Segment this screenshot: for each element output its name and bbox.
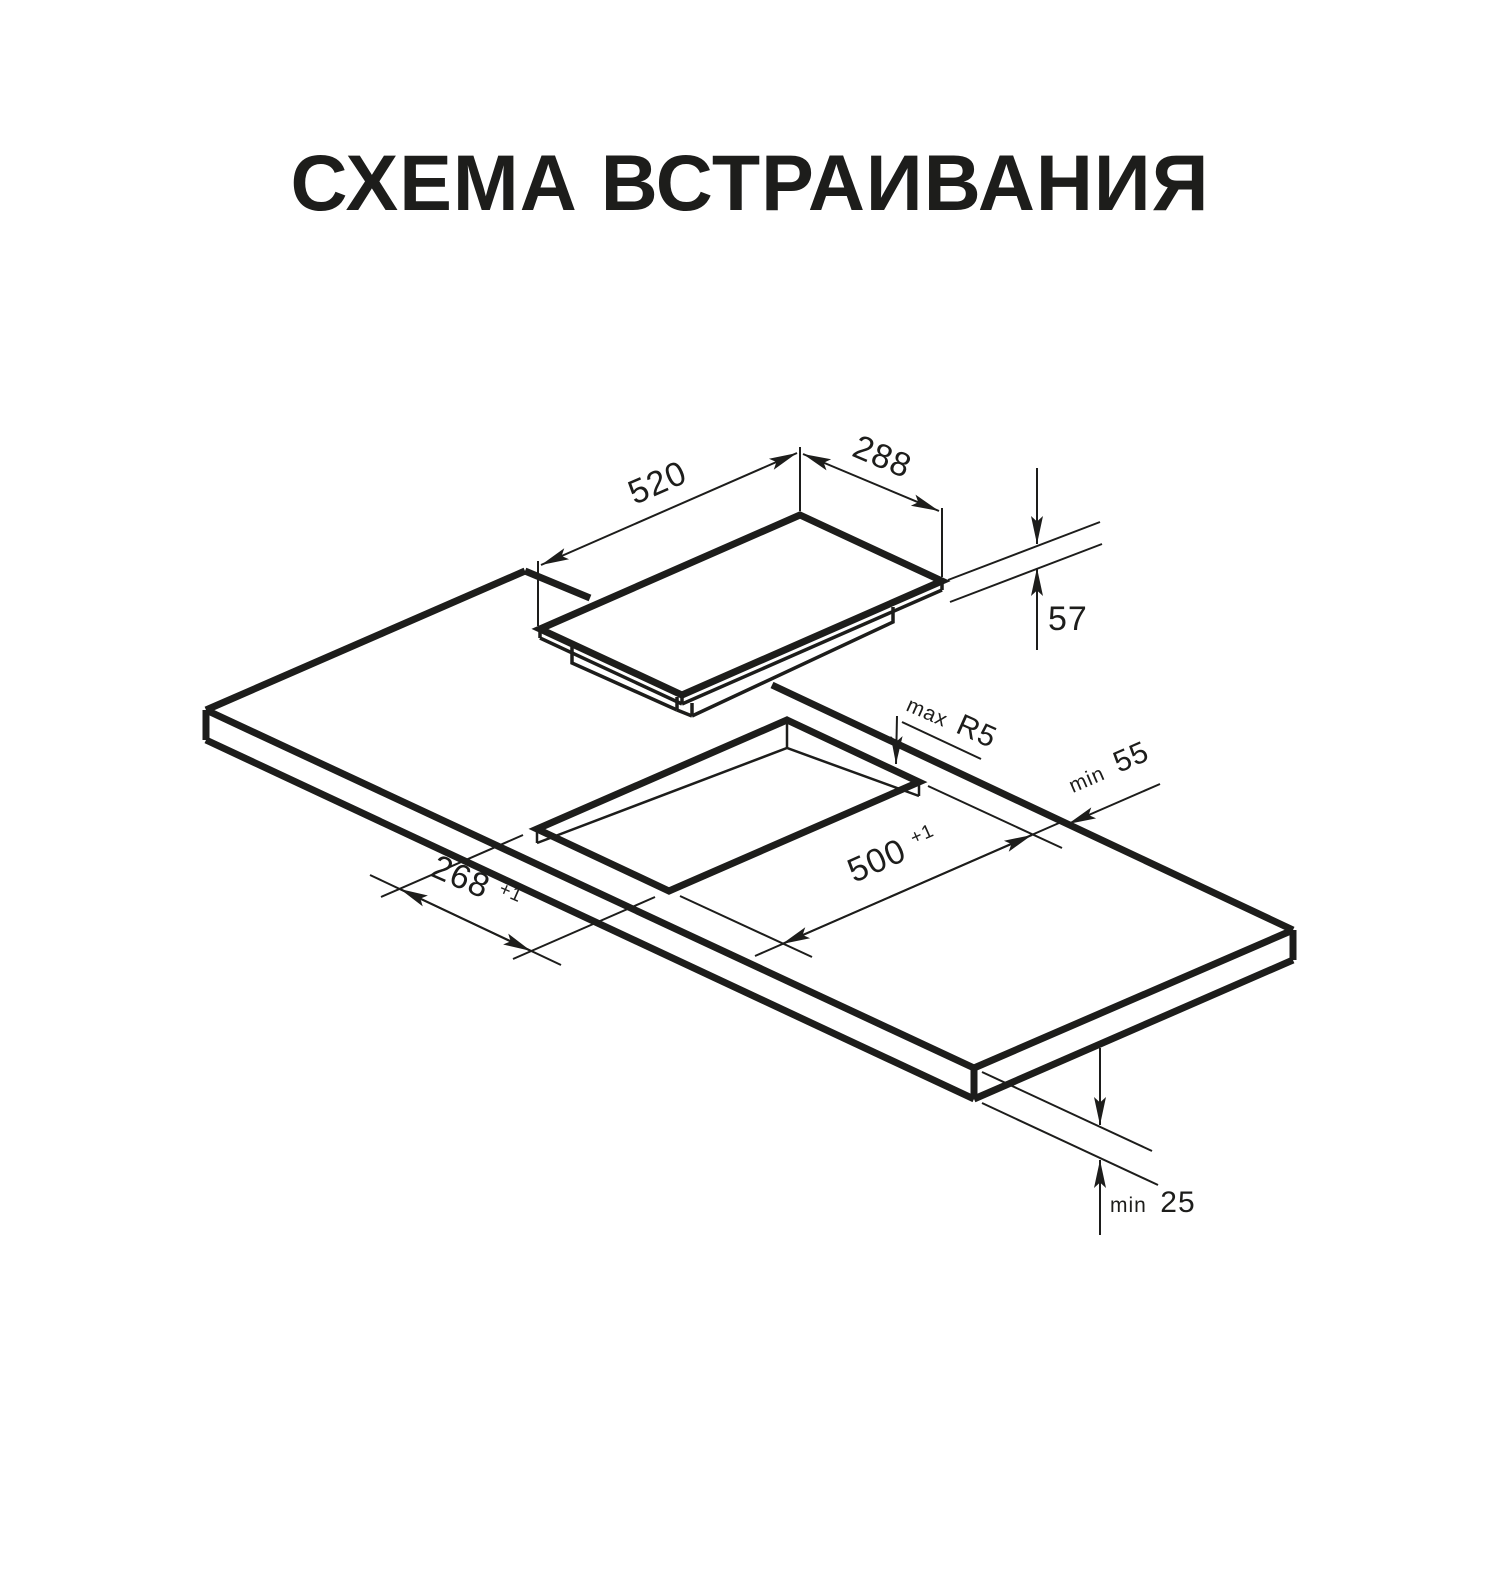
hob-height-label: 57	[1048, 600, 1088, 638]
cutout-length-tolerance: +1	[907, 820, 937, 849]
cutout-width-value: 268	[426, 848, 496, 907]
dimension-hob-width: 520	[538, 447, 800, 626]
extension-line	[982, 1072, 1152, 1151]
cutout-length-value: 500	[842, 831, 912, 890]
worktop-thickness-value: 25	[1160, 1186, 1195, 1219]
dimension-worktop-thickness: min 25	[982, 1048, 1196, 1235]
dimension-cutout-length: 500 +1	[680, 786, 1062, 957]
worktop-back-right-edge	[772, 685, 1293, 930]
hob-glass-top	[540, 515, 942, 695]
hob	[540, 515, 942, 716]
hob-glass-edge-right	[682, 590, 942, 704]
dimension-back-clearance: min 55	[1062, 735, 1160, 824]
worktop-front-right-edge	[974, 930, 1293, 1068]
worktop-back-right-edge-behind-hob	[525, 571, 590, 598]
extension-line	[948, 522, 1100, 580]
extension-line	[928, 786, 1062, 848]
extension-line	[950, 544, 1102, 602]
worktop-bottom-left-edge	[206, 740, 974, 1099]
extension-line	[513, 897, 655, 959]
worktop-thickness-label: min 25	[1110, 1186, 1196, 1219]
extension-line	[680, 896, 812, 957]
worktop-back-left-edge	[206, 571, 525, 710]
dimension-hob-height: 57	[948, 468, 1102, 650]
installation-drawing: 520 288 57 max R5	[0, 0, 1500, 1586]
worktop-thickness-prefix: min	[1110, 1194, 1147, 1217]
installation-diagram-page: СХЕМА ВСТРАИВАНИЯ	[0, 0, 1500, 1586]
leader-stem	[896, 716, 897, 764]
back-clearance-value: 55	[1108, 735, 1154, 779]
hob-housing-corner-bottom	[677, 710, 692, 716]
back-clearance-label: min 55	[1062, 735, 1154, 799]
dimension-hob-depth: 288	[803, 428, 942, 577]
worktop	[206, 571, 1293, 1099]
back-clearance-prefix: min	[1066, 762, 1109, 798]
cutout-inner-bottom-edges	[537, 748, 919, 843]
hob-glass-edge-left	[540, 638, 682, 704]
extension-line	[982, 1103, 1158, 1185]
dimensions: 520 288 57 max R5	[370, 428, 1196, 1235]
worktop-bottom-right-edge	[974, 960, 1293, 1099]
cutout-width-tolerance: +1	[496, 879, 526, 908]
